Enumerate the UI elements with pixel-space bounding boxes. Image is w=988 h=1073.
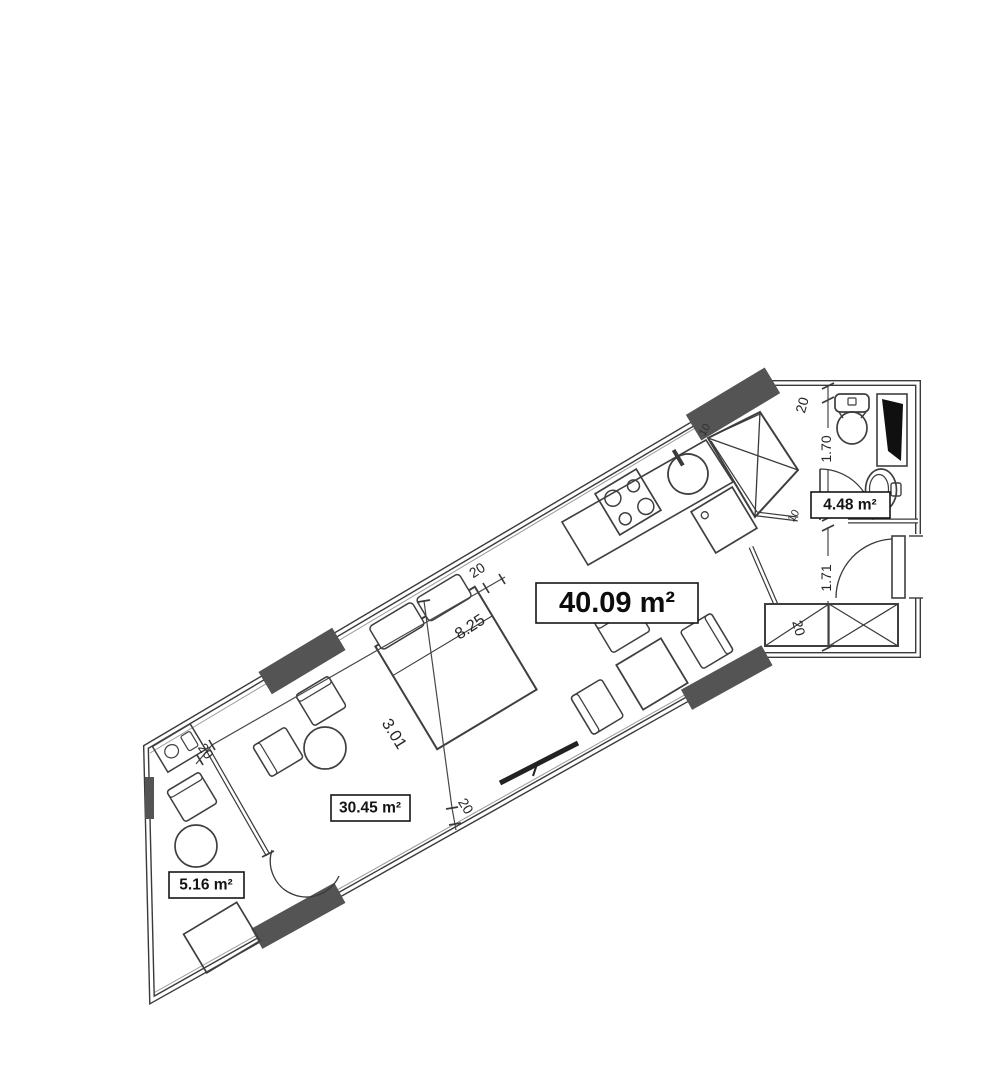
entrance-door <box>836 534 923 598</box>
balcony <box>152 724 259 973</box>
window-pier <box>145 777 154 819</box>
balcony-area-label: 5.16 m² <box>179 877 232 894</box>
window-pier <box>251 883 345 949</box>
round-table <box>175 825 217 867</box>
entrance-door-opening <box>909 534 923 598</box>
kitchen <box>562 440 757 565</box>
kitchen-sink-icon <box>656 440 715 502</box>
duct-shaft <box>877 394 907 466</box>
room-area-label: 30.45 m² <box>339 800 401 817</box>
toilet-icon <box>835 394 869 444</box>
entrance-door-leaf <box>892 536 905 598</box>
window-glazing-line <box>150 390 759 753</box>
shaft-fill <box>882 399 903 461</box>
floor-plan-page: 8.25 3.01 1.70 1.71 20 20 20 20 20 10 10… <box>0 0 988 1073</box>
armchair <box>166 772 217 822</box>
dim-label-width: 3.01 <box>378 716 410 753</box>
dim-label-bathroom: 1.70 <box>818 435 834 462</box>
dim-label-wall-thickness: 20 <box>792 395 812 414</box>
armchair <box>295 676 346 726</box>
dim-label-hall: 1.71 <box>818 564 834 591</box>
balcony-door <box>262 850 339 897</box>
dim-line-width <box>424 601 456 830</box>
coffee-table <box>304 727 346 769</box>
hall-partition-core <box>751 547 777 607</box>
wardrobe-icon <box>765 604 898 646</box>
dim-label-length: 8.25 <box>452 611 489 644</box>
total-area-label: 40.09 m² <box>559 587 675 619</box>
balcony-door-swing-arc <box>270 850 339 897</box>
entrance-door-swing-arc <box>836 539 892 598</box>
bathroom-area-label: 4.48 m² <box>823 497 876 514</box>
armchair <box>252 727 303 777</box>
dim-label-thin-wall: 10 <box>786 508 803 525</box>
floor-plan-drawing: 8.25 3.01 1.70 1.71 20 20 20 20 20 10 10… <box>0 0 988 1073</box>
